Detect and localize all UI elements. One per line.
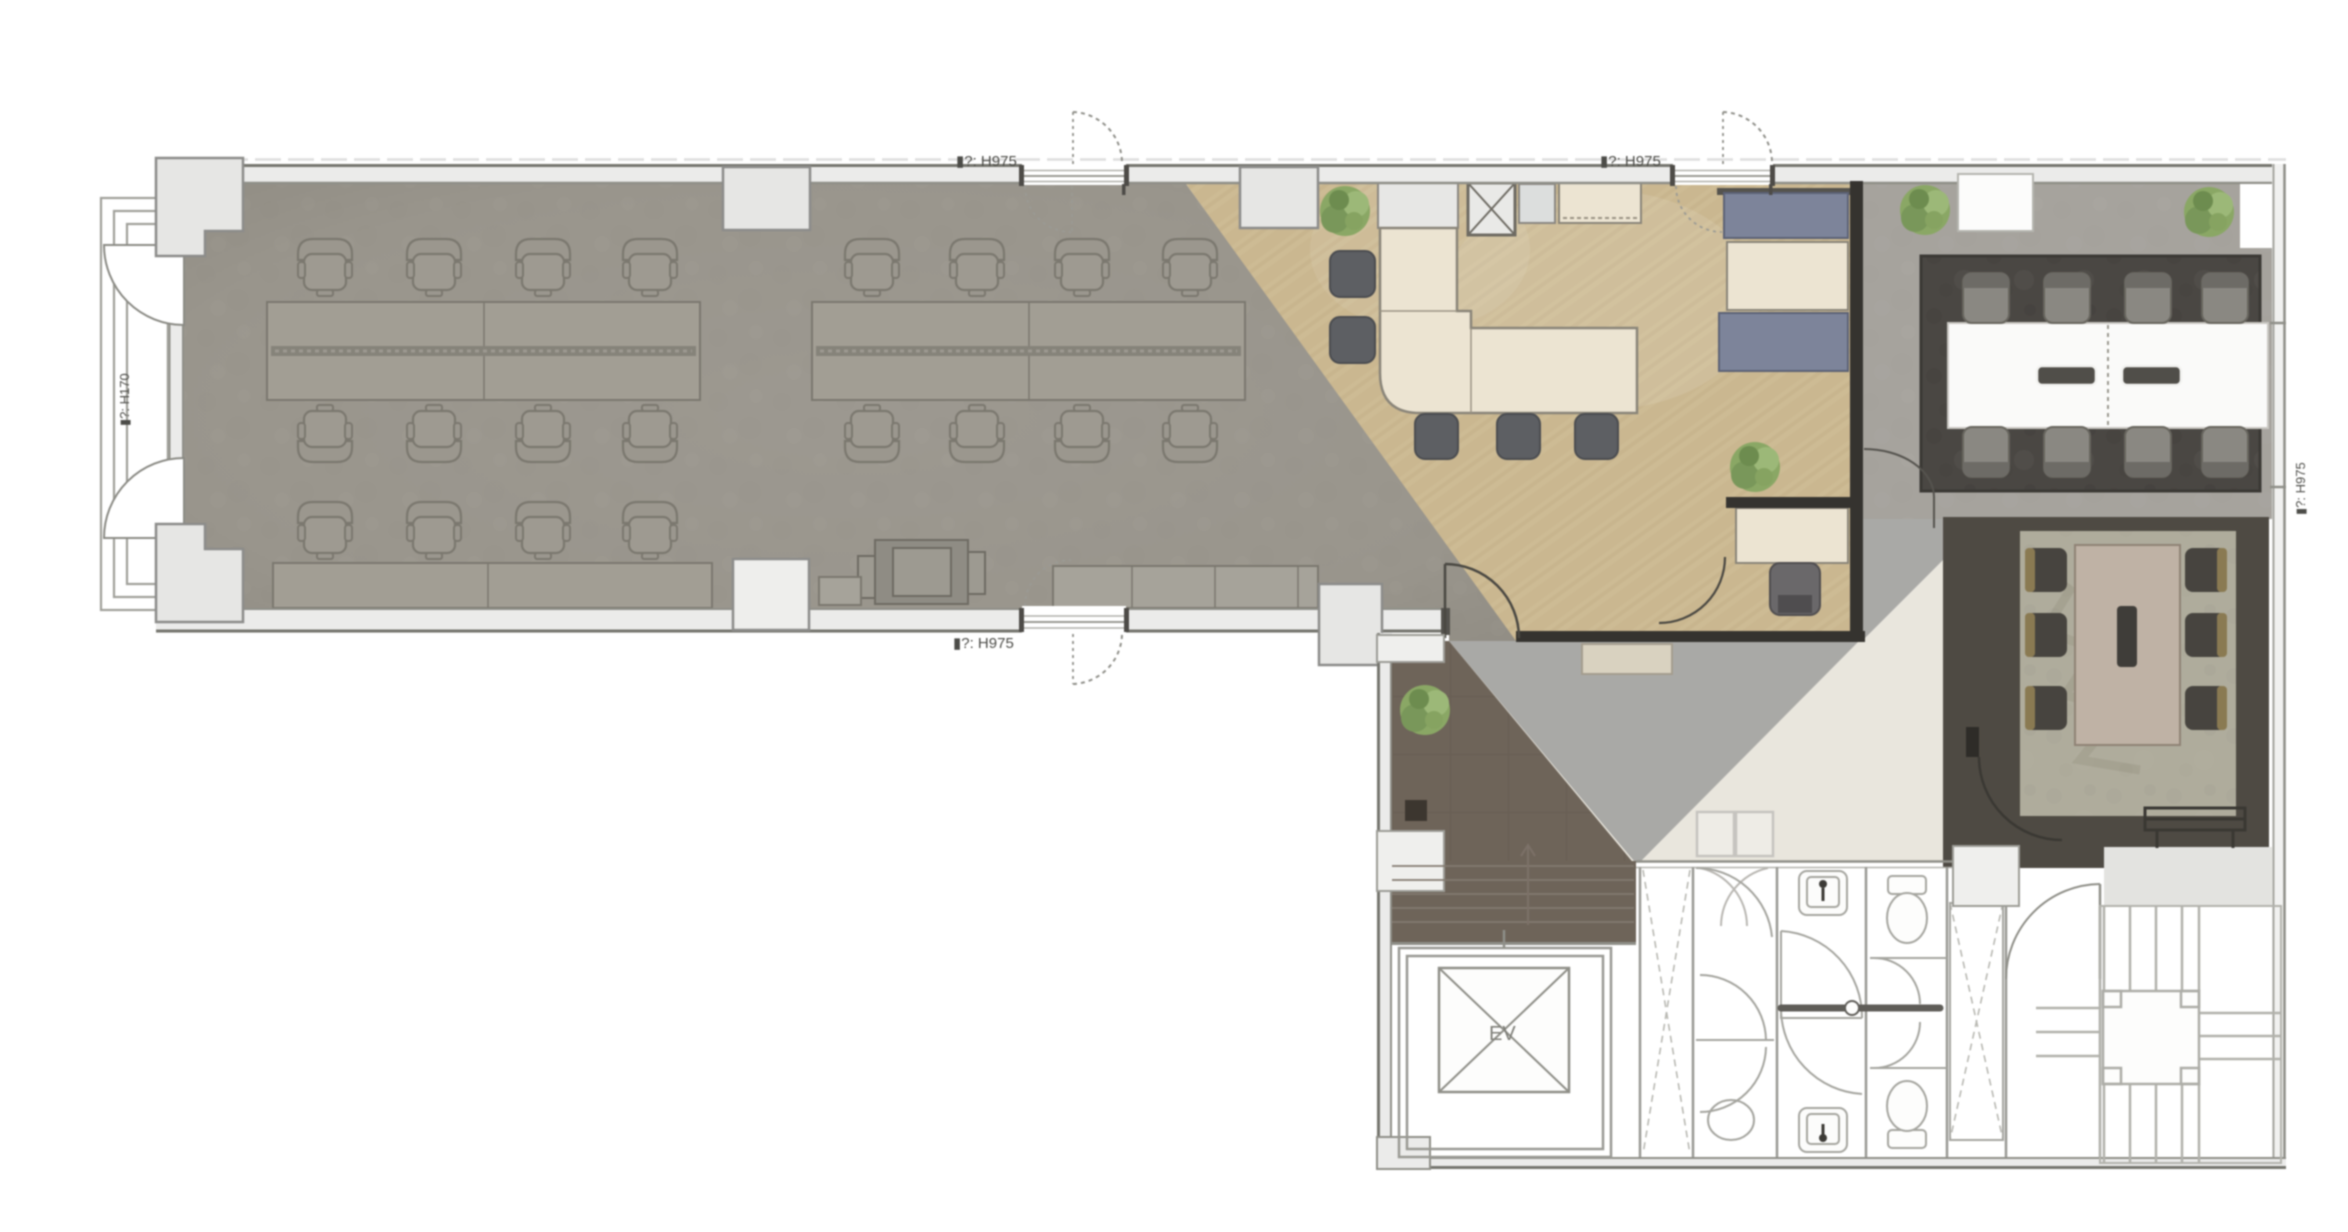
svg-text:▮?: H975: ▮?: H975 bbox=[1600, 153, 1661, 170]
svg-text:EV: EV bbox=[1489, 1023, 1516, 1045]
svg-text:▮?: H975: ▮?: H975 bbox=[953, 635, 1014, 652]
svg-text:▮?: H170: ▮?: H170 bbox=[117, 373, 132, 426]
svg-text:▮?: H975: ▮?: H975 bbox=[956, 153, 1017, 170]
svg-text:▮?: H975: ▮?: H975 bbox=[2293, 462, 2308, 515]
